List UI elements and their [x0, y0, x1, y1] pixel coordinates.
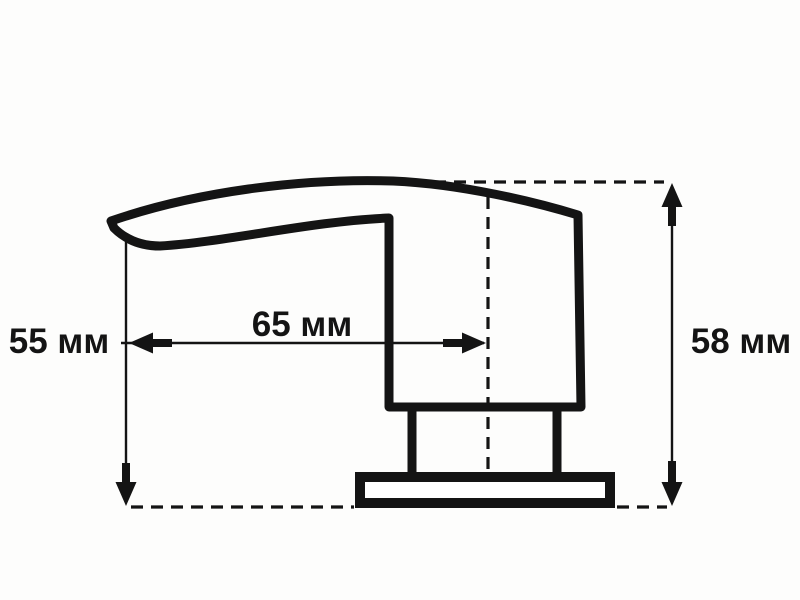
dispenser-spout-body-outline [111, 181, 581, 407]
dim-58-down-arrow [662, 461, 683, 506]
dim-58-up-arrow [662, 183, 683, 226]
dispenser-base-flange [360, 477, 610, 503]
dispenser-dimension-diagram: 55 мм 65 мм 58 мм [0, 0, 800, 600]
dim-65-left-arrow [129, 333, 172, 354]
dim-55-down-arrow [116, 463, 137, 506]
dim-65-label: 65 мм [252, 305, 352, 344]
dim-55-label: 55 мм [9, 322, 109, 361]
dim-65-right-arrow [443, 333, 486, 354]
technical-drawing-page: 55 мм 65 мм 58 мм [0, 0, 800, 600]
dim-58-label: 58 мм [691, 322, 791, 361]
